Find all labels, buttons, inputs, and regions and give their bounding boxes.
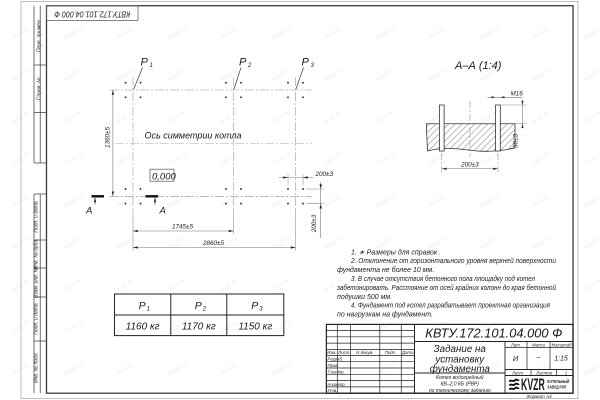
svg-text:200±3: 200±3 [460,161,479,168]
svg-text:–: – [536,355,541,362]
svg-text:Пров.: Пров. [328,363,339,368]
svg-text:Подп. и дата: Подп. и дата [33,201,39,233]
svg-text:А: А [159,206,166,217]
svg-text:3. В случае отсутствия бетонно: 3. В случае отсутствия бетонного пола пл… [351,275,535,283]
svg-text:Подп. и дата: Подп. и дата [33,303,39,335]
svg-text:1150 кг: 1150 кг [238,322,272,333]
svg-text:Перв. примен.: Перв. примен. [37,19,43,52]
svg-text:Ось симметрии котла: Ось симметрии котла [145,129,242,140]
svg-text:0,000: 0,000 [152,171,176,182]
svg-text:Утв.: Утв. [328,388,338,393]
svg-text:КВ–2,0 КБ (РВР): КВ–2,0 КБ (РВР) [441,381,480,387]
svg-text:Формат А3: Формат А3 [526,394,552,399]
svg-text:Н.контр.: Н.контр. [328,382,346,387]
svg-text:Справ. №: Справ. № [37,77,43,100]
svg-text:Лит.: Лит. [510,342,521,347]
svg-text:1360±5: 1360±5 [104,127,111,148]
svg-text:Листов: Листов [535,371,552,376]
svg-text:ЗАВОД РЭП: ЗАВОД РЭП [547,385,566,390]
svg-text:Изм.: Изм. [327,350,336,355]
svg-text:фундамента не более 10 мм.: фундамента не более 10 мм. [337,266,434,274]
svg-text:И: И [513,354,519,363]
svg-text:2: 2 [247,63,252,69]
svg-text:2. Отклонение от горизонтально: 2. Отклонение от горизонтального уровня … [350,257,556,265]
svg-text:Взам. инв. №: Взам. инв. № [33,266,39,298]
svg-text:1: 1 [150,63,153,69]
svg-text:Подп.: Подп. [385,350,396,355]
svg-text:Масса: Масса [532,342,545,347]
svg-text:Р: Р [141,57,149,69]
svg-text:Инв. № подл.: Инв. № подл. [33,352,39,383]
svg-text:М16: М16 [511,91,524,98]
svg-text:Р: Р [139,300,146,312]
svg-text:Р: Р [251,300,258,312]
svg-text:KVZR: KVZR [521,376,545,394]
svg-text:2860±5: 2860±5 [202,240,224,247]
svg-text:по техническому заданию: по техническому заданию [429,388,491,394]
svg-text:Котел водогрейный: Котел водогрейный [436,374,484,381]
svg-text:1:15: 1:15 [554,356,568,363]
svg-text:Р: Р [239,57,247,69]
svg-text:КВТУ.172.101.04.000 Ф: КВТУ.172.101.04.000 Ф [425,327,562,341]
svg-text:200±3: 200±3 [315,171,334,178]
svg-text:Р: Р [302,57,310,69]
svg-text:N докум.: N докум. [356,350,373,355]
svg-text:4. Фундамент под котел разраба: 4. Фундамент под котел разрабатывает про… [351,302,550,310]
svg-text:Дата: Дата [401,350,414,355]
svg-text:А–А (1:4): А–А (1:4) [454,60,502,72]
svg-text:200±3: 200±3 [311,214,318,233]
svg-text:Масштаб: Масштаб [551,342,572,347]
svg-text:50±3: 50±3 [513,134,520,148]
svg-text:1: 1 [147,307,150,313]
svg-text:Разраб.: Разраб. [328,357,344,362]
svg-text:КВТУ.172.101.04.000 Ф: КВТУ.172.101.04.000 Ф [54,10,131,19]
svg-text:1170 кг: 1170 кг [182,322,216,333]
svg-text:1745±5: 1745±5 [172,224,193,231]
svg-text:КОТЕЛЬНЫЙ: КОТЕЛЬНЫЙ [547,379,569,384]
svg-text:2: 2 [202,307,207,313]
svg-text:1160 кг: 1160 кг [126,322,160,333]
svg-text:Р: Р [195,300,202,312]
svg-text:фундамента: фундамента [430,364,491,375]
svg-text:1. ∗ Размеры для справок .: 1. ∗ Размеры для справок . [351,248,441,256]
svg-text:Лист: Лист [337,350,349,355]
svg-text:А: А [85,206,92,217]
svg-text:подушки 500 мм.: подушки 500 мм. [337,293,392,301]
svg-text:по нагрузкам на фундамент.: по нагрузкам на фундамент. [337,311,433,319]
svg-text:Т.контр.: Т.контр. [328,369,345,374]
svg-text:Лист: Лист [511,371,523,376]
svg-text:Инв. № дубл.: Инв. № дубл. [33,239,39,270]
svg-text:забетонировать. Расстояние от: забетонировать. Расстояние от осей крайн… [336,284,556,292]
